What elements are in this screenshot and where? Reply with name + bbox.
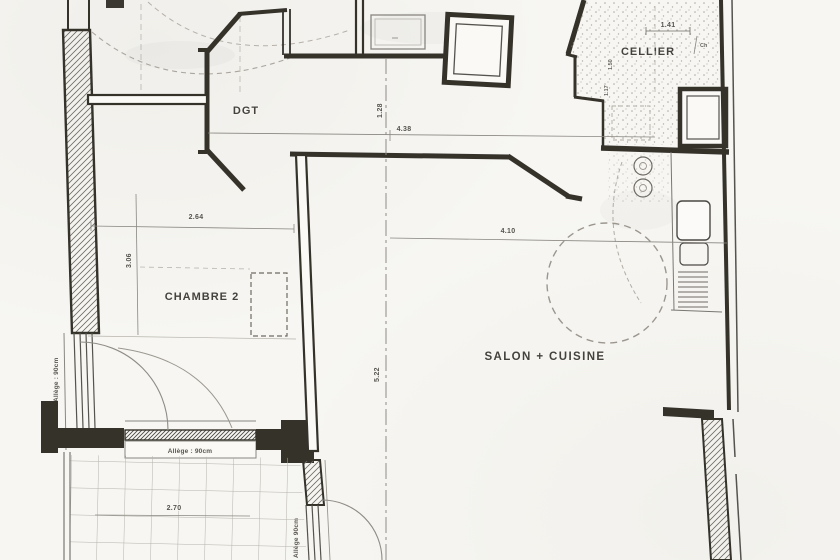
chambre-top-wall <box>88 95 207 104</box>
room-label-dgt: DGT <box>233 105 259 117</box>
dim-cellier-width: 1.41 <box>661 22 676 29</box>
lower-right-hatched-wall <box>702 419 731 560</box>
allege-left-label: Allège : 90cm <box>53 357 60 402</box>
allege-window-label: Allège : 90cm <box>168 448 213 455</box>
room-label-chambre2: CHAMBRE 2 <box>165 291 239 303</box>
balcony-tiles <box>70 455 307 560</box>
hatched-wall <box>63 30 99 333</box>
drainer-icon <box>678 272 708 307</box>
balcony-door-arc <box>322 500 382 560</box>
dim-salon-width: 4.10 <box>501 228 516 235</box>
sink-icon <box>677 201 710 240</box>
dim-chambre-depth: 3.06 <box>126 253 133 268</box>
sink-basin-icon <box>680 243 708 265</box>
duct-shaft-cellier <box>680 89 726 146</box>
left-exterior-wall <box>63 0 99 333</box>
room-label-cellier: CELLIER <box>621 46 675 58</box>
balcony: 2.70 <box>64 452 307 560</box>
cellier-bottom-wall <box>601 148 729 152</box>
chambre-right-wall <box>296 155 318 451</box>
chambre-door-arcs <box>80 342 232 430</box>
room-label-salon: SALON + CUISINE <box>484 351 605 363</box>
cellier-mark: Ch <box>700 43 708 49</box>
dim-hall-width: 4.38 <box>397 126 412 133</box>
dim-cellier-b: 1.17 <box>604 85 610 96</box>
dim-balcony-width: 2.70 <box>167 505 182 512</box>
dim-chambre-width: 2.64 <box>189 214 204 221</box>
balcony-right-wall: Allège 90cm <box>293 460 382 560</box>
cropped-wall-fragment <box>106 0 124 8</box>
dim-hall-depth: 1.28 <box>377 103 384 118</box>
dim-salon-depth: 5.22 <box>374 367 381 382</box>
chambre-window-band: Allège : 90cm <box>125 421 256 458</box>
window-sill-hatch <box>125 430 256 440</box>
wardrobe-dashed <box>251 273 287 336</box>
kitchen <box>608 152 722 312</box>
cellier: 1.41 CELLIER Ch 1.50 1.17 <box>569 2 729 152</box>
dim-cellier-a: 1.50 <box>608 59 614 70</box>
balcony-door-jamb <box>256 420 314 463</box>
duct-shaft-top <box>444 14 511 85</box>
floor-plan-page: Allège : 90cm Allège : 90cm Allège 90cm <box>0 0 840 560</box>
salon-bottom-right-wall <box>663 407 714 419</box>
floor-plan-svg: Allège : 90cm Allège : 90cm Allège 90cm <box>0 0 840 560</box>
